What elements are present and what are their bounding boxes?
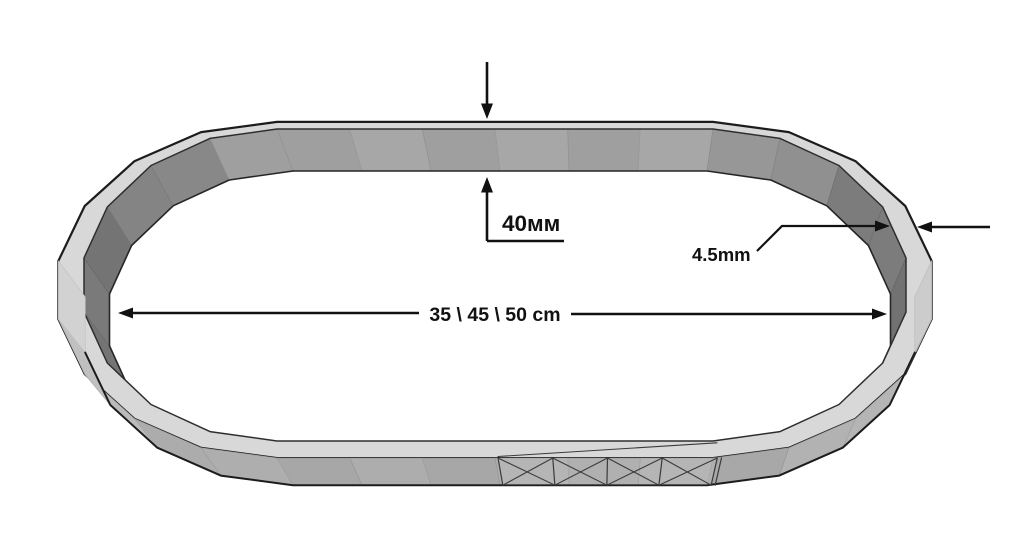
inner-length-label: 35 \ 45 \ 50 cm	[429, 304, 560, 326]
top-arrow-head-icon	[481, 104, 493, 120]
clamp-rib-line	[607, 458, 608, 485]
outer-wall-facet	[422, 458, 500, 485]
inner-wall-facet	[638, 129, 713, 171]
inner-wall-facet	[350, 129, 431, 171]
inner-wall-facet	[422, 129, 500, 171]
inner-wall-facet	[495, 129, 569, 171]
inner-length-dimension: 35 \ 45 \ 50 cm	[118, 304, 887, 326]
inner-bottom-edge	[293, 171, 891, 395]
thickness-arrow-left-head-icon	[917, 222, 932, 233]
width-arrow-left-head-icon	[118, 308, 133, 319]
top-pointer-arrow	[481, 62, 493, 119]
wall-thickness-label: 4.5mm	[692, 244, 751, 265]
wall-thickness-dimension: 4.5mm	[692, 221, 990, 266]
width-arrow-right-head-icon	[872, 309, 887, 320]
outer-wall-facet	[350, 458, 431, 485]
technical-drawing: 40мм 4.5mm 35 \ 45 \ 50 cm	[0, 0, 1024, 533]
hoop-drawing-canvas: 40мм 4.5mm 35 \ 45 \ 50 cm	[0, 0, 1024, 533]
inner-wall-facet	[568, 129, 641, 171]
band-height-dimension: 40мм	[481, 177, 564, 241]
band-height-label: 40мм	[502, 211, 560, 236]
